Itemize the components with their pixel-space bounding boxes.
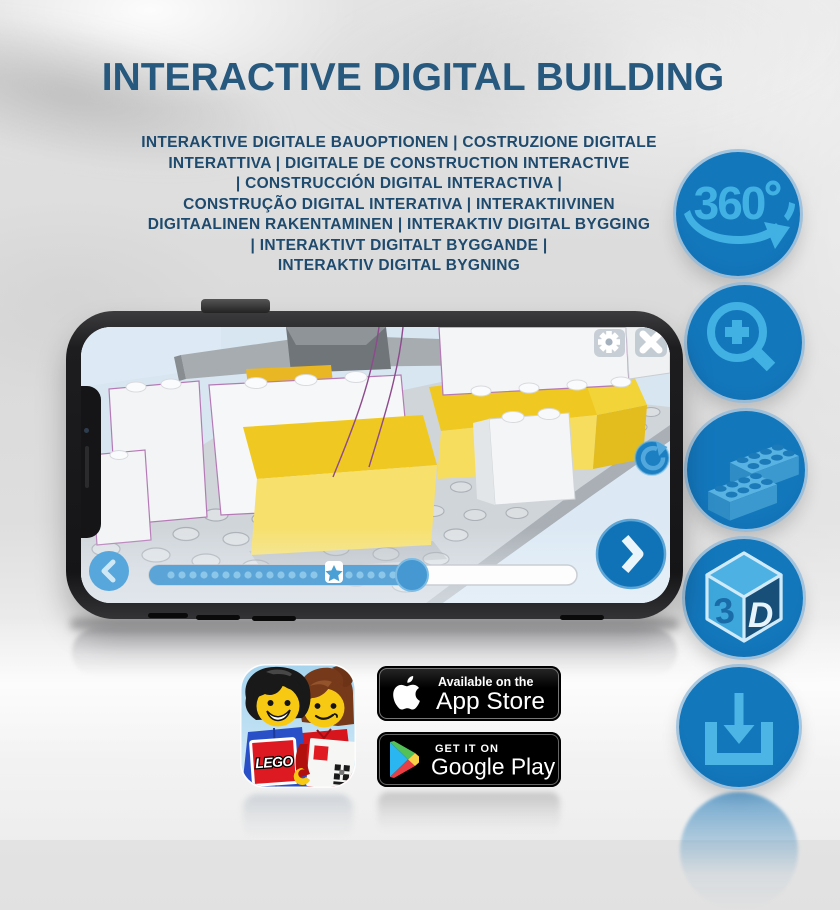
svg-text:LEGO: LEGO xyxy=(255,753,294,772)
svg-text:Google Play: Google Play xyxy=(431,754,556,780)
svg-text:Available on the: Available on the xyxy=(438,675,533,689)
svg-text:D: D xyxy=(748,596,773,635)
svg-text:360: 360 xyxy=(694,177,765,229)
svg-text:App Store: App Store xyxy=(436,688,545,715)
